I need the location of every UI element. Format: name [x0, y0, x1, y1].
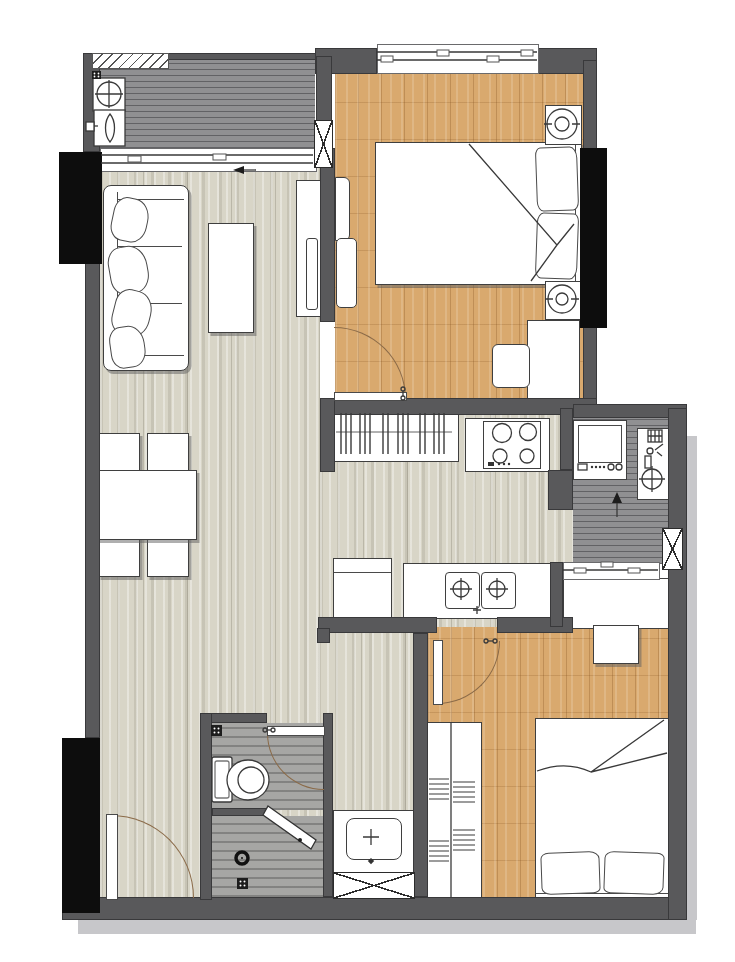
shower-room-floor [212, 816, 323, 897]
wall-kitchen-south-notch [317, 628, 330, 643]
column-left-lower [62, 738, 100, 913]
bedroom1-wall-panel-b [336, 238, 357, 308]
dining-chair-bottom-left [98, 537, 140, 577]
dining-chair-top-right [147, 433, 189, 473]
bathroom-door-leaf [267, 726, 325, 736]
balcony-sliding-door [100, 148, 317, 172]
x-shaft-balcony [314, 120, 333, 168]
wall-right-mid [583, 326, 597, 406]
dining-chair-top-left [98, 433, 140, 473]
bedroom2-wardrobe [425, 722, 482, 899]
wall-utility-west-upper [560, 408, 573, 470]
louver-window [92, 53, 169, 69]
bedroom2-door-leaf [433, 640, 443, 705]
building-shadow-right [687, 436, 697, 920]
tv-screen [306, 238, 318, 310]
dining-table [92, 470, 197, 540]
refrigerator-door-line [334, 572, 391, 573]
wall-right-lower [668, 408, 687, 920]
toilet-room-floor [212, 723, 323, 810]
balcony-floor [100, 60, 315, 148]
wall-closetrow-west [550, 562, 563, 627]
washbasin [346, 818, 402, 860]
wall-balcony-top-rail [165, 53, 318, 60]
wall-bottom [62, 897, 687, 920]
wall-bathroom-east [323, 713, 333, 897]
wall-bedroom2-west [413, 633, 428, 897]
cooktop [483, 421, 541, 469]
column-left-upper [59, 152, 102, 264]
entry-door-leaf [106, 814, 118, 900]
bedroom2-desk [593, 625, 639, 664]
bedroom1-nightstand-top [545, 105, 582, 145]
water-heater-counter [637, 428, 669, 500]
bedroom1-window [377, 44, 539, 74]
utility-window [563, 562, 660, 580]
bedroom2-pillow-1 [540, 851, 600, 895]
coffee-table [208, 223, 254, 333]
wall-living-bedroom1 [320, 148, 335, 322]
sink-bowl-right [481, 572, 516, 609]
sink-bowl-left [445, 572, 480, 609]
washing-machine-lid [578, 425, 622, 463]
x-marked-cabinet [333, 872, 415, 899]
building-shadow-bottom [78, 918, 696, 934]
bedroom1-chair [492, 344, 530, 388]
bedroom2-pillow-2 [603, 851, 664, 895]
bedroom1-desk [527, 320, 580, 399]
bedroom1-pillow-2 [535, 212, 579, 279]
wall-kitchen-south-west [318, 617, 437, 633]
x-shaft-utility [662, 528, 683, 570]
column-right [580, 148, 607, 328]
bedroom1-nightstand-bottom [545, 281, 582, 320]
bedroom1-wall-panel-a [335, 177, 350, 241]
dining-chair-bottom-right [147, 537, 189, 577]
floor-plan [0, 0, 735, 962]
bedroom1-door-leaf [334, 392, 407, 401]
washing-machine [573, 420, 627, 480]
wall-right-upper [583, 60, 597, 150]
bedroom1-pillow-1 [535, 146, 579, 211]
wall-bathroom-west [200, 713, 212, 900]
hanger-closet [332, 408, 459, 462]
wall-utility-west-lower [548, 470, 573, 510]
bedroom2-built-in-closet [563, 578, 670, 629]
wall-bathroom-divider [212, 808, 270, 816]
refrigerator [333, 558, 392, 619]
wall-closet-west [320, 398, 335, 472]
